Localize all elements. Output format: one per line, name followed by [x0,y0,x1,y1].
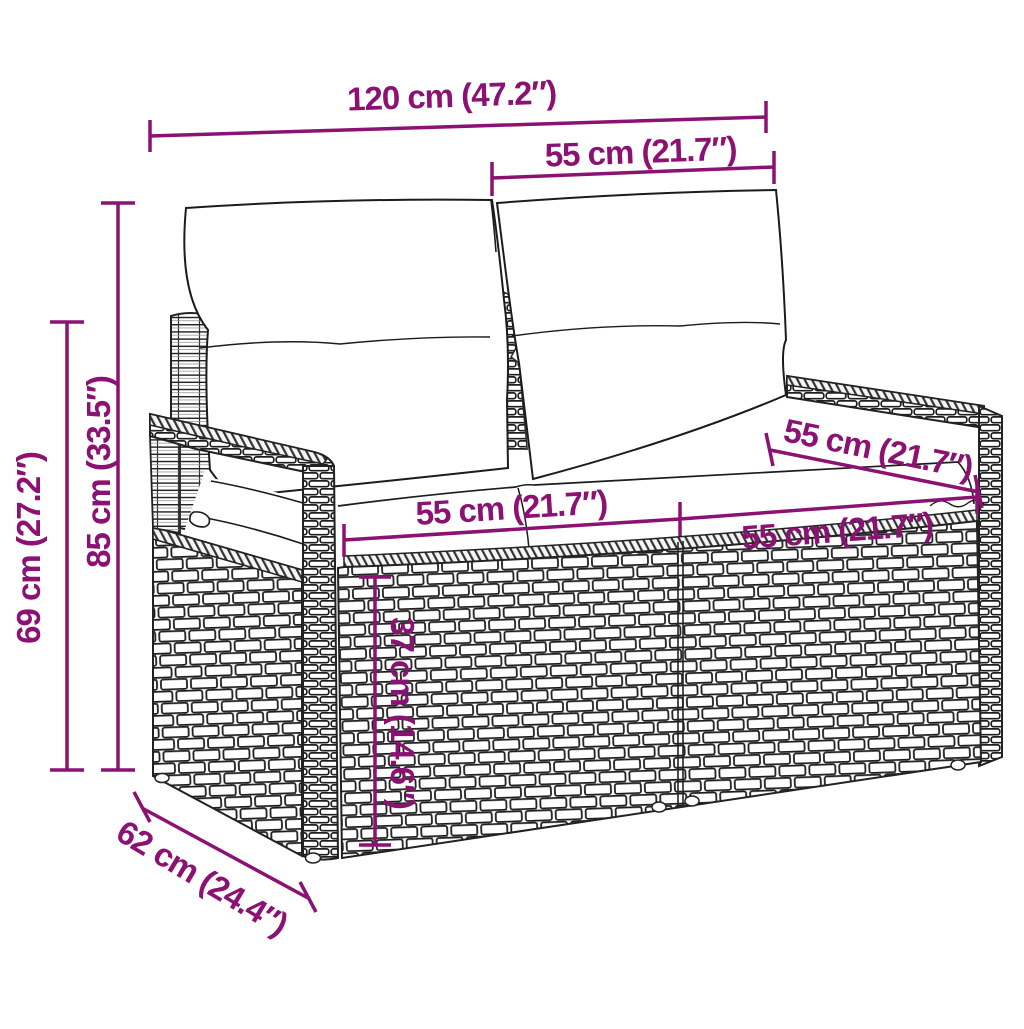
svg-text:69 cm (27.2″): 69 cm (27.2″) [10,452,47,644]
svg-text:85 cm (33.5″): 85 cm (33.5″) [80,376,117,568]
svg-text:37 cm (14.6″): 37 cm (14.6″) [384,617,421,809]
svg-text:55 cm (21.7″): 55 cm (21.7″) [544,129,737,173]
svg-text:120 cm (47.2″): 120 cm (47.2″) [346,73,556,117]
